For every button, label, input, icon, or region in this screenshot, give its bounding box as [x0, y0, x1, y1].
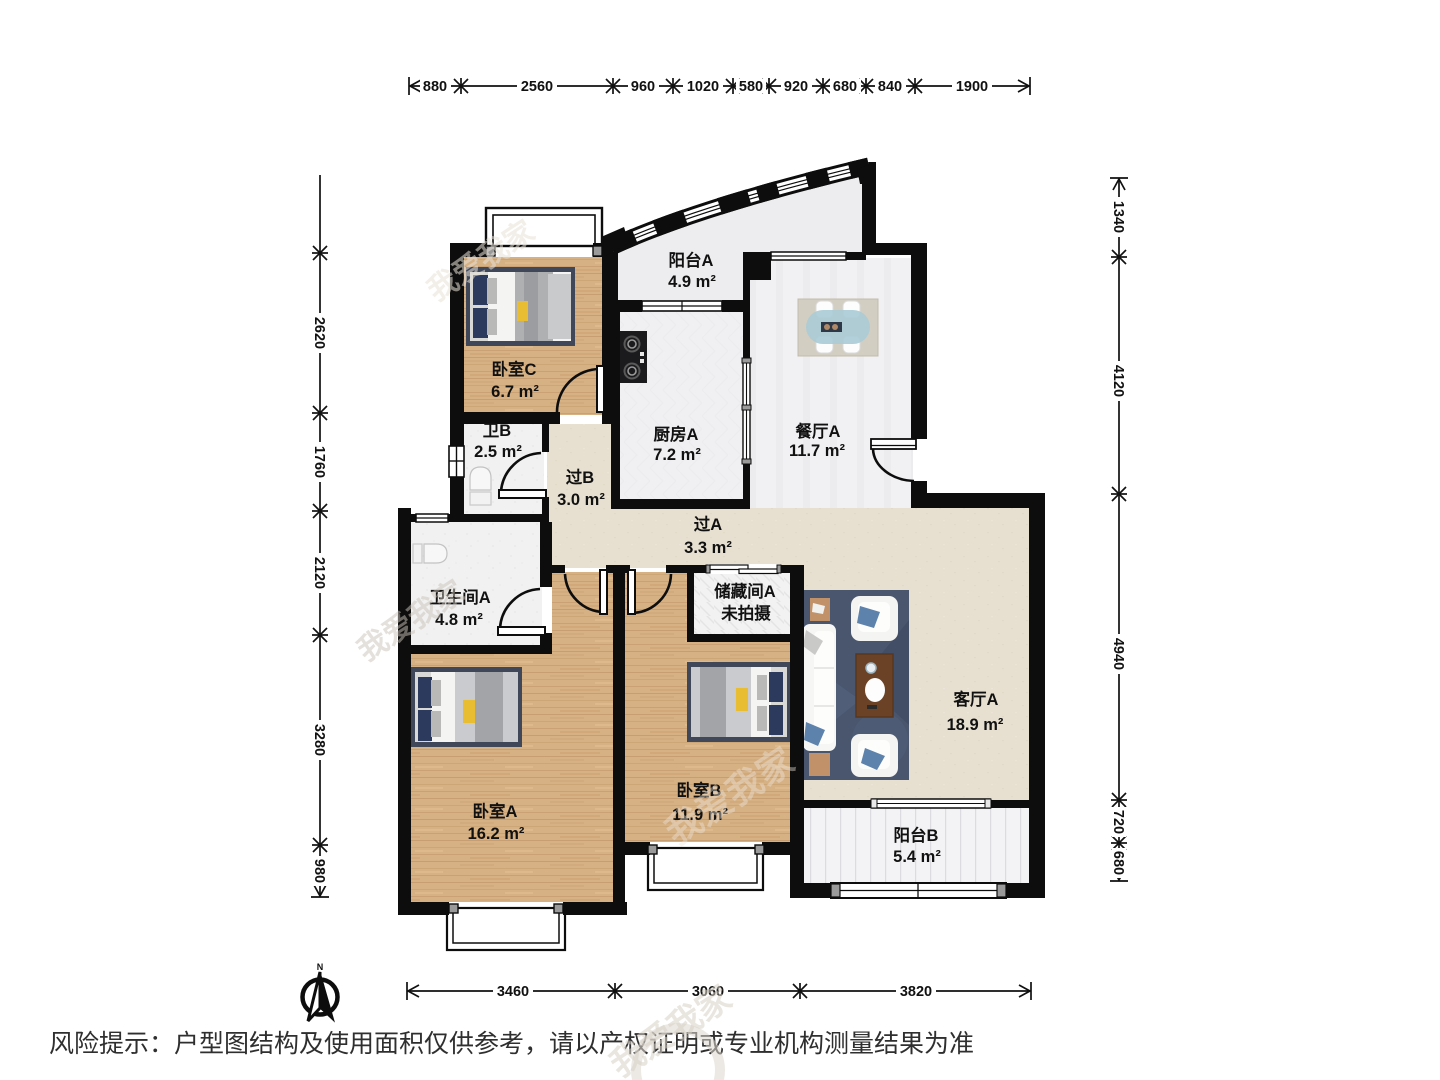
svg-text:餐厅A: 餐厅A [796, 421, 841, 441]
svg-text:过A: 过A [694, 515, 723, 534]
svg-text:880: 880 [423, 79, 447, 95]
svg-text:卧室A: 卧室A [473, 801, 518, 821]
svg-text:阳台B: 阳台B [894, 825, 939, 845]
svg-text:2120: 2120 [311, 557, 327, 589]
svg-text:2560: 2560 [521, 79, 553, 95]
svg-text:4940: 4940 [1110, 638, 1126, 670]
svg-text:680: 680 [833, 79, 857, 95]
svg-text:储藏间A: 储藏间A [714, 581, 776, 601]
svg-text:4.9 m²: 4.9 m² [668, 273, 716, 291]
svg-text:未拍摄: 未拍摄 [721, 603, 771, 623]
svg-text:1340: 1340 [1110, 201, 1126, 233]
svg-text:风险提示：户型图结构及使用面积仅供参考，请以产权证明或专业机: 风险提示：户型图结构及使用面积仅供参考，请以产权证明或专业机构测量结果为准 [49, 1030, 974, 1058]
svg-text:920: 920 [784, 79, 808, 95]
svg-text:960: 960 [631, 79, 655, 95]
svg-text:980: 980 [311, 859, 327, 883]
svg-text:客厅A: 客厅A [953, 689, 999, 709]
svg-text:卫B: 卫B [483, 422, 512, 440]
svg-text:680: 680 [1110, 851, 1126, 875]
svg-text:卧室C: 卧室C [492, 359, 537, 379]
svg-text:3280: 3280 [311, 724, 327, 756]
svg-text:4120: 4120 [1110, 365, 1126, 397]
svg-text:16.2 m²: 16.2 m² [468, 825, 525, 843]
svg-text:720: 720 [1110, 810, 1126, 834]
svg-text:580: 580 [739, 79, 763, 95]
svg-text:3460: 3460 [497, 984, 529, 1000]
svg-text:11.7 m²: 11.7 m² [789, 442, 845, 460]
svg-text:18.9 m²: 18.9 m² [947, 716, 1004, 734]
svg-text:1900: 1900 [956, 79, 988, 95]
svg-text:3820: 3820 [900, 984, 932, 1000]
svg-text:5.4 m²: 5.4 m² [893, 848, 941, 866]
svg-text:过B: 过B [566, 468, 595, 487]
svg-text:2.5 m²: 2.5 m² [474, 443, 522, 461]
svg-text:厨房A: 厨房A [654, 424, 699, 444]
svg-text:1760: 1760 [311, 446, 327, 478]
svg-text:7.2 m²: 7.2 m² [653, 446, 701, 464]
svg-text:3.0 m²: 3.0 m² [557, 491, 605, 509]
svg-text:阳台A: 阳台A [669, 250, 714, 270]
svg-text:1020: 1020 [687, 79, 719, 95]
svg-text:2620: 2620 [311, 317, 327, 349]
svg-text:840: 840 [878, 79, 902, 95]
svg-text:N: N [317, 962, 324, 972]
svg-text:3.3 m²: 3.3 m² [684, 539, 732, 557]
svg-text:6.7 m²: 6.7 m² [491, 383, 539, 401]
